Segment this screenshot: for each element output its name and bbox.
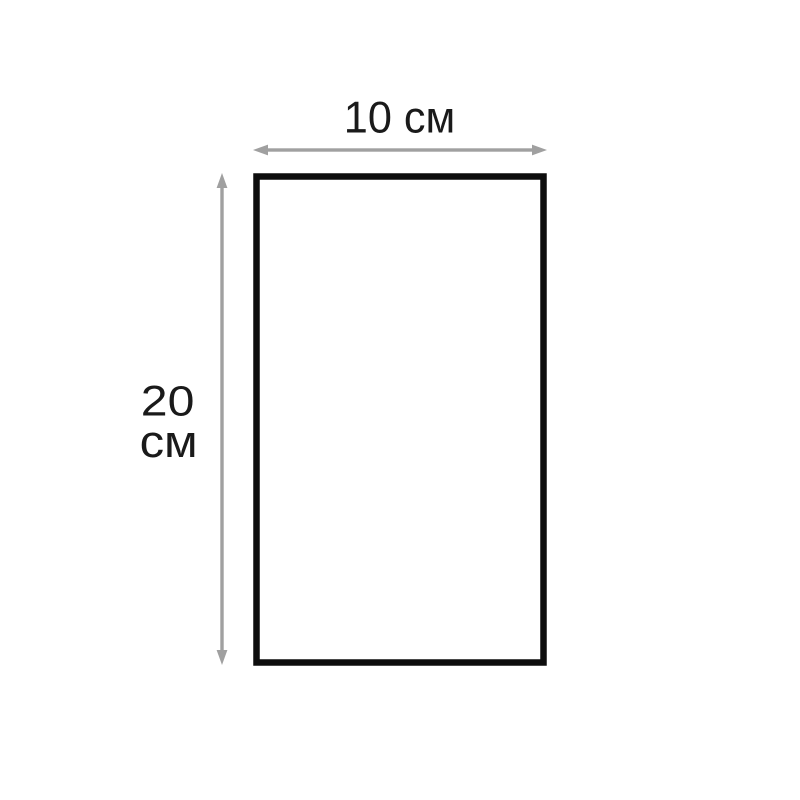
svg-text:см: см xyxy=(140,416,198,467)
svg-text:10 см: 10 см xyxy=(344,94,456,143)
